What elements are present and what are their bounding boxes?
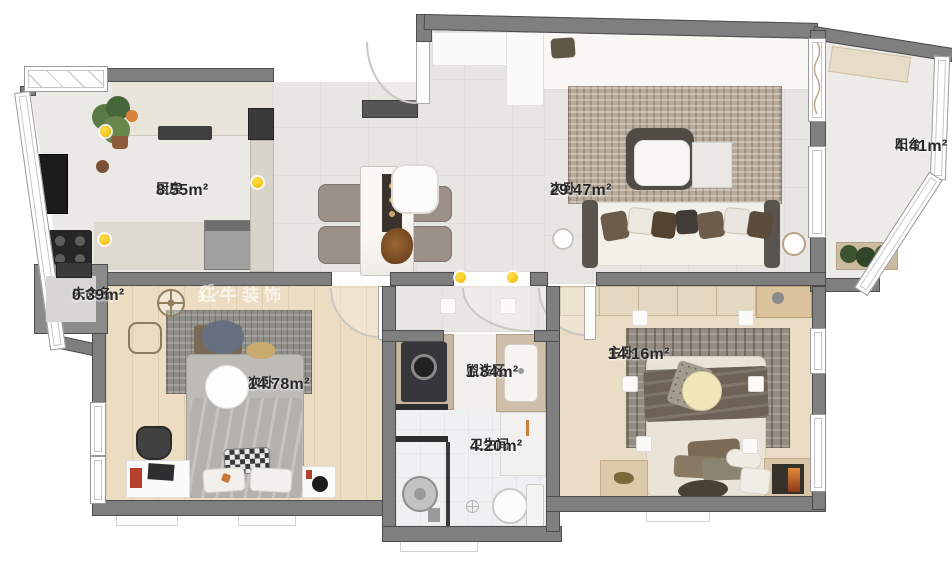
bed-lamp	[622, 376, 638, 392]
coffee-table-marble	[692, 142, 732, 188]
candle-glow	[788, 468, 800, 492]
room-area: 14.16m²	[608, 346, 670, 364]
washer-drum	[411, 354, 437, 380]
desk-book	[130, 468, 142, 488]
small-pot	[96, 160, 109, 173]
kitchen-cabinet-column	[250, 140, 274, 272]
kitchen-pillar	[248, 108, 274, 140]
bed-lamp	[742, 438, 758, 454]
room-area: 4.41m²	[895, 138, 948, 156]
dining-chair	[408, 226, 452, 262]
toilet-icon	[492, 488, 528, 524]
plant-pot	[112, 136, 128, 149]
sofa-pillow	[651, 211, 678, 240]
bedroom2-window	[90, 402, 106, 456]
room-area: 1.84m²	[466, 364, 519, 382]
mid-wall	[530, 272, 548, 286]
shower-head-icon	[402, 476, 438, 512]
bath-left-wall	[382, 286, 396, 540]
pouf	[246, 342, 276, 359]
towel-bar	[526, 420, 529, 436]
dresser	[756, 286, 812, 318]
bedroom2-bottom-wall	[92, 500, 394, 516]
bed-lamp	[738, 310, 754, 326]
corridor-tile	[440, 298, 456, 314]
room-area: 4.20m²	[470, 438, 523, 456]
wash-top-wall	[382, 330, 444, 342]
round-cushion	[682, 371, 722, 411]
side-table	[782, 232, 806, 256]
room-area: 8.55m²	[156, 182, 209, 200]
balcony-window	[808, 146, 826, 238]
entry-cabinet-side	[506, 32, 544, 106]
desk-chair	[136, 426, 172, 460]
curtain-icon	[810, 40, 824, 120]
floor-drain	[466, 500, 479, 513]
dresser-knob	[772, 292, 784, 304]
ceiling-fan-icon	[154, 286, 188, 320]
plant-icon	[92, 96, 142, 152]
partition-bar	[396, 436, 448, 442]
bed-lamp	[636, 436, 652, 452]
bedroom2-window	[90, 456, 106, 504]
pendant-lamp	[391, 164, 439, 214]
kitchen-sink	[158, 126, 212, 140]
small-red-item	[306, 470, 312, 479]
closet-duct	[56, 262, 92, 278]
light-dot	[455, 272, 466, 283]
fan-heater	[312, 476, 328, 492]
room-area: 29.47m²	[550, 182, 612, 200]
watermark: 红牛装饰	[198, 280, 338, 306]
kitchen-bay-window	[24, 66, 108, 92]
sofa-pillow	[675, 209, 699, 234]
room-area: 0.39m²	[72, 287, 125, 305]
master-window	[810, 414, 826, 492]
master-window	[810, 328, 826, 374]
partition-bar	[396, 404, 448, 410]
table-centerpiece	[381, 228, 413, 264]
shower-glass	[446, 442, 450, 528]
coffee-table-top	[634, 140, 690, 186]
pillow	[739, 467, 772, 496]
room-area: 14.78m²	[248, 376, 310, 394]
sofa-pillow	[600, 210, 630, 242]
plant-fruit	[126, 110, 138, 122]
light-dot	[252, 177, 263, 188]
wash-top-wall	[534, 330, 560, 342]
bed-lamp	[748, 376, 764, 392]
entry-door	[416, 40, 430, 104]
floor-plan: 红牛装饰 厨房 8.55m² 次卧 29.47m² 阳台 4.41m² 未命名 …	[0, 0, 952, 568]
desk-laptop	[147, 463, 174, 481]
sofa-pillow	[746, 210, 774, 239]
tv-console	[544, 32, 812, 90]
nightstand-decor	[614, 472, 634, 484]
light-dot	[507, 272, 518, 283]
sofa-pillow	[696, 210, 725, 239]
mid-wall	[596, 272, 826, 286]
toilet-tank	[526, 484, 544, 528]
wall-decor-frame	[128, 322, 162, 354]
bed-lamp	[632, 310, 648, 326]
bath-bottom-wall	[382, 526, 562, 542]
shower-stand	[428, 508, 440, 522]
balcony-right-window	[930, 56, 950, 180]
bull-icon	[198, 282, 222, 304]
pillow	[249, 467, 292, 493]
light-dot	[99, 234, 110, 245]
console-decor	[550, 37, 575, 59]
master-door	[584, 286, 596, 340]
mid-wall	[390, 272, 454, 286]
master-bottom-wall	[546, 496, 826, 512]
light-dot	[100, 126, 111, 137]
sofa-arm	[582, 200, 598, 268]
round-lantern	[205, 365, 249, 409]
side-table	[552, 228, 574, 250]
